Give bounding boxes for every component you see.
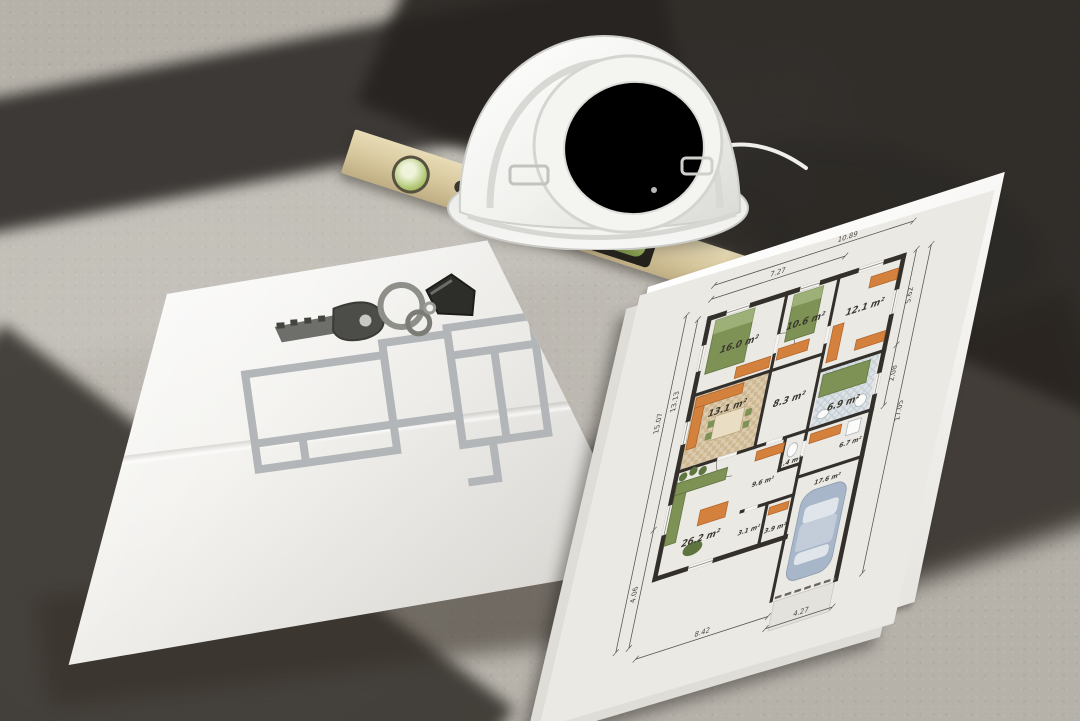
house-keys	[265, 261, 481, 367]
dim-left-inner-lower: 4.06	[628, 585, 640, 604]
dim-top-partial: 7.27	[769, 265, 787, 279]
dresser-room3	[854, 330, 886, 350]
dim-right-small: 2.08	[887, 364, 899, 383]
key-head	[331, 301, 385, 342]
dim-right-overall: 17.05	[892, 398, 905, 422]
room-label-12-1: 12.1 m²	[844, 295, 886, 319]
hat-rivet	[651, 187, 657, 193]
wardrobe-room3a	[869, 268, 899, 288]
room-label-6-7: 6.7 m²	[838, 435, 862, 450]
keyring	[379, 284, 424, 329]
house-keychain	[423, 273, 477, 318]
room-label-3-9: 3.9 m²	[763, 520, 787, 535]
room-label-3-1: 3.1 m²	[737, 522, 761, 537]
wardrobe-room2	[776, 339, 809, 360]
washer	[845, 418, 861, 436]
room-label-9-6: 9.6 m²	[751, 474, 775, 489]
key	[273, 301, 385, 346]
room-label-8-3: 8.3 m²	[772, 389, 807, 411]
dim-right-upper: 5.62	[903, 286, 915, 305]
construction-scene-photo: 16.0 m² 10.6 m² 12.1 m² 13.1 m² 8.3 m² 6…	[0, 0, 1080, 721]
dim-bottom-left: 8.42	[694, 625, 711, 639]
hard-hat	[446, 20, 754, 250]
living-room-set	[660, 453, 738, 566]
